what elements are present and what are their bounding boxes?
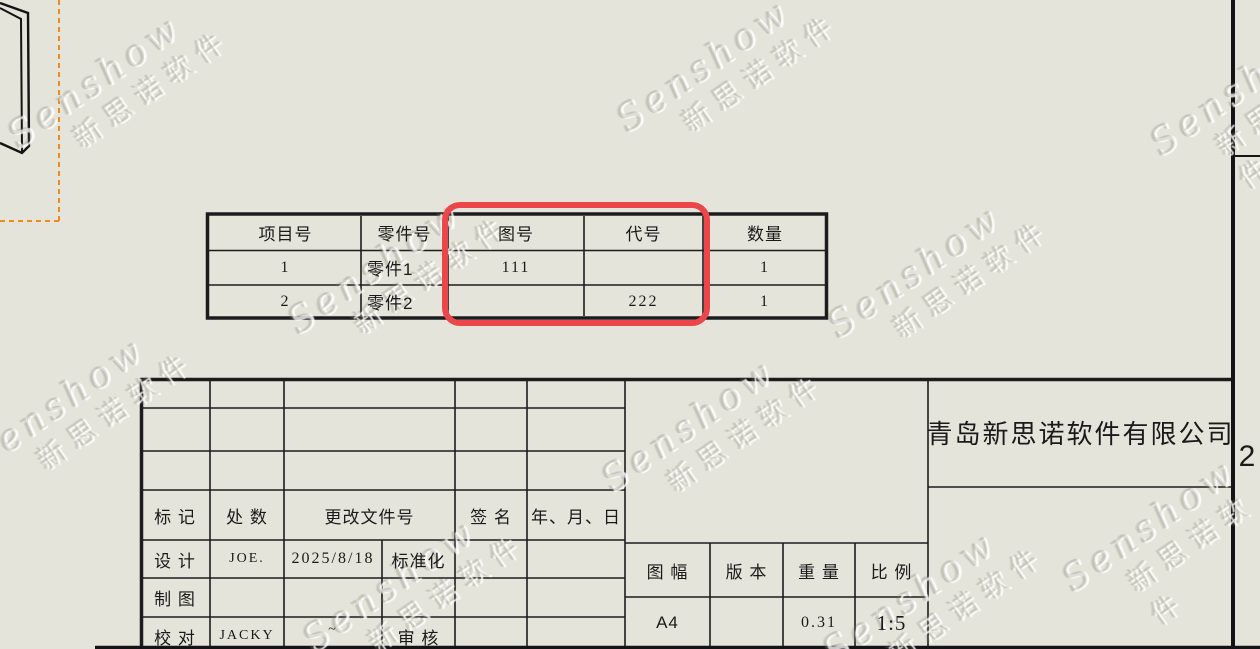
label-design: 设 计 [140,540,210,578]
version-value[interactable] [710,597,783,649]
label-standardization: 标准化 [382,540,455,578]
highlight-annotation [442,202,710,326]
label-scale: 比 例 [855,543,928,597]
check-name-value[interactable]: JACKY [210,617,284,649]
bom-cell[interactable]: 零件1 [363,250,451,285]
bom-cell[interactable]: 零件2 [363,285,451,318]
label-weight: 重 量 [783,543,855,597]
drawing-sheet: Senshow 新思诺软件 Senshow 新思诺软件 Senshow 新思诺软… [0,0,1260,649]
bom-header-qty[interactable]: 数量 [703,214,827,250]
design-name-value[interactable]: JOE. [210,540,284,578]
bom-cell[interactable]: 2 [210,285,361,318]
bom-cell[interactable]: 1 [703,285,827,318]
sheet-size-value[interactable]: A4 [625,597,710,649]
frame-zone-label: 2 [1234,438,1260,476]
label-sheet-size: 图 幅 [625,543,710,597]
bom-cell[interactable]: 1 [703,250,827,285]
label-mark: 标 记 [140,490,210,540]
bom-header-part-no[interactable]: 零件号 [361,214,448,250]
label-check: 校 对 [140,617,210,649]
design-date-value[interactable]: 2025/8/18 [284,540,382,578]
label-signature: 签 名 [455,490,527,540]
bom-header-item-no[interactable]: 项目号 [210,214,361,250]
label-count: 处 数 [210,490,284,540]
check-mark-value[interactable]: ~ [284,611,382,649]
label-draft: 制 图 [140,578,210,617]
label-review: 审 核 [382,617,455,649]
weight-value[interactable]: 0.31 [783,597,855,649]
part-geometry[interactable] [0,3,29,153]
company-name[interactable]: 青岛新思诺软件有限公司 [928,378,1233,487]
bom-cell[interactable]: 1 [210,250,361,285]
label-date: 年、月、日 [527,490,625,540]
label-change-doc: 更改文件号 [284,490,455,540]
scale-value[interactable]: 1:5 [855,597,928,649]
label-version: 版 本 [710,543,783,597]
